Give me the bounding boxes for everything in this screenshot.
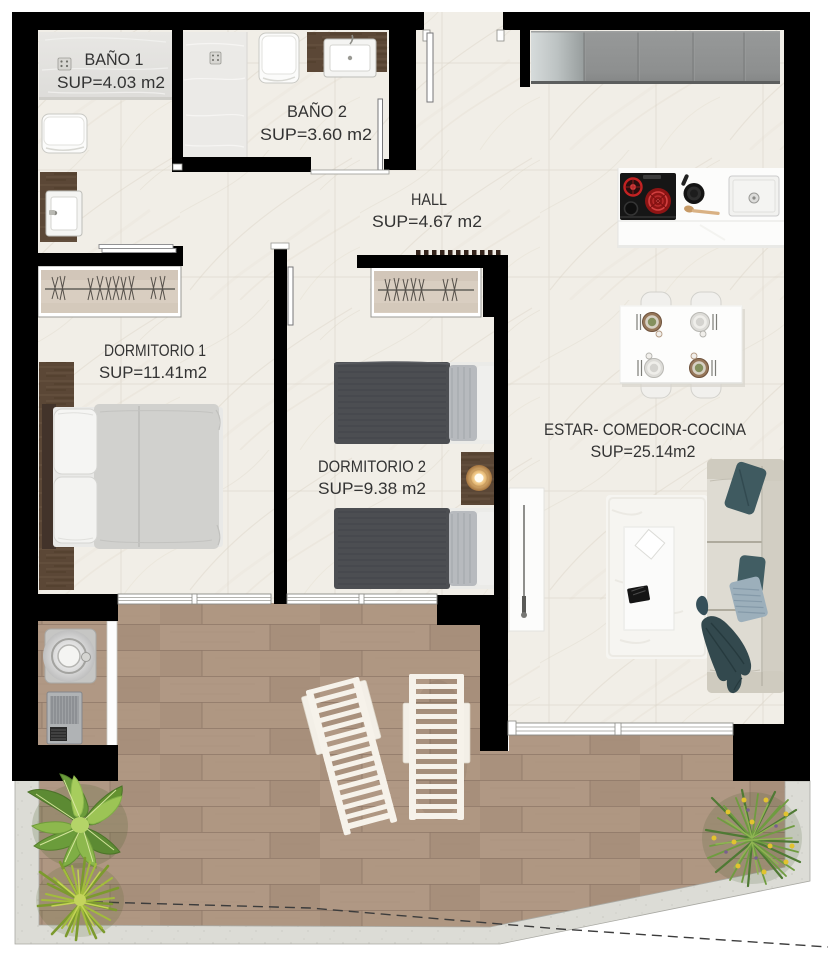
svg-text:SUP=25.14m2: SUP=25.14m2 (591, 442, 696, 461)
svg-text:SUP=3.60 m2: SUP=3.60 m2 (260, 125, 372, 144)
svg-text:BAÑO 1: BAÑO 1 (85, 50, 144, 69)
svg-text:DORMITORIO 2: DORMITORIO 2 (318, 457, 426, 476)
svg-text:SUP=4.67 m2: SUP=4.67 m2 (372, 212, 482, 231)
svg-text:BAÑO 2: BAÑO 2 (287, 102, 347, 121)
svg-text:ESTAR- COMEDOR-COCINA: ESTAR- COMEDOR-COCINA (544, 420, 747, 439)
svg-text:DORMITORIO 1: DORMITORIO 1 (104, 341, 206, 360)
svg-text:SUP=11.41m2: SUP=11.41m2 (99, 363, 207, 382)
svg-text:SUP=9.38 m2: SUP=9.38 m2 (318, 479, 426, 498)
svg-text:SUP=4.03 m2: SUP=4.03 m2 (57, 73, 165, 92)
svg-text:HALL: HALL (411, 190, 447, 209)
